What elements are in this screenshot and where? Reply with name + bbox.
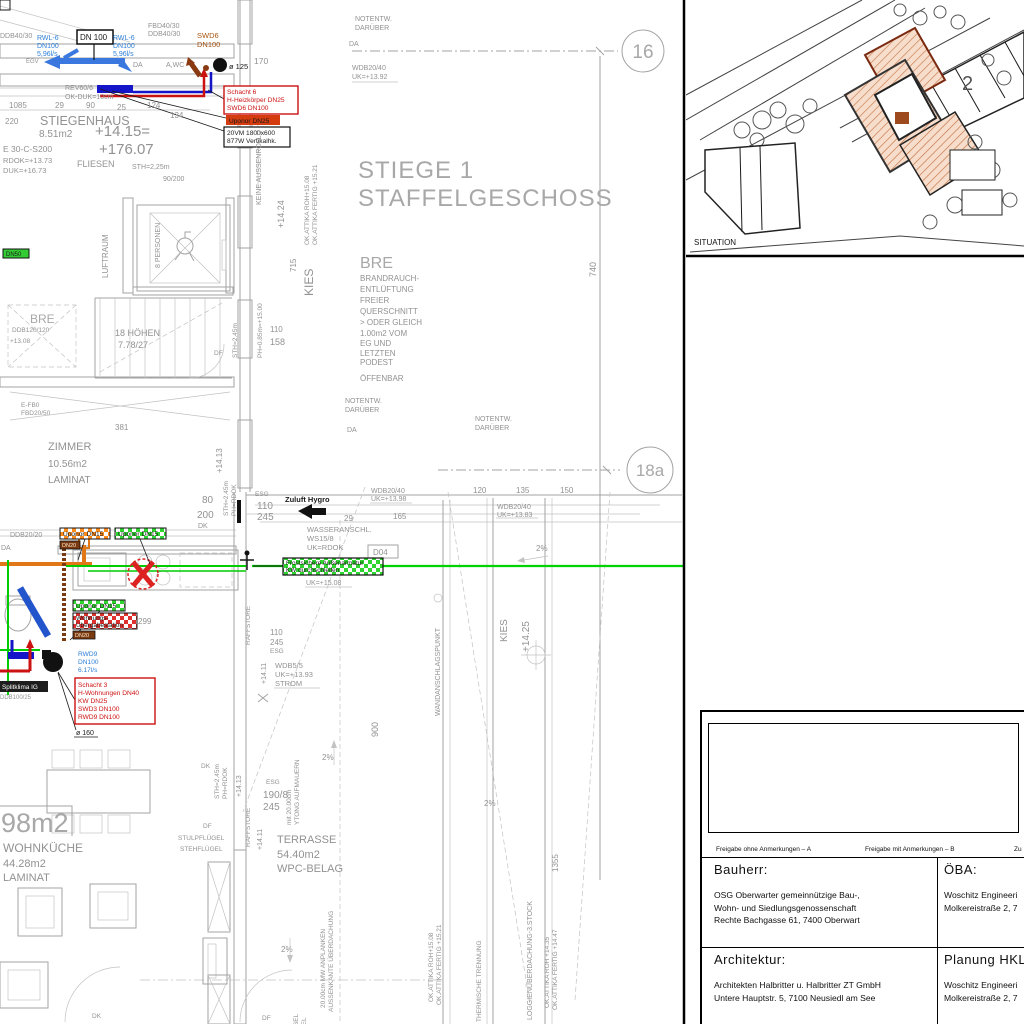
- svg-text:DN100: DN100: [113, 43, 135, 50]
- svg-text:BRE: BRE: [30, 312, 55, 326]
- svg-text:EG UND: EG UND: [360, 339, 391, 348]
- svg-text:ESG: ESG: [255, 491, 269, 498]
- svg-text:DDB120/120: DDB120/120: [12, 327, 50, 334]
- elevator: [137, 205, 230, 291]
- svg-text:ESG: ESG: [266, 779, 280, 786]
- svg-text:2%: 2%: [536, 544, 548, 553]
- svg-text:6.17l/s: 6.17l/s: [78, 667, 98, 674]
- svg-text:1085: 1085: [9, 101, 27, 110]
- svg-text:DK: DK: [201, 763, 211, 770]
- svg-text:UK=+15.08: UK=+15.08: [306, 580, 342, 587]
- svg-text:NOTENTW.: NOTENTW.: [475, 416, 512, 423]
- situation-plan: 2 SITUATION: [686, 0, 1024, 252]
- svg-text:2%: 2%: [281, 945, 293, 954]
- vm20-line1: 20VM 1800x600: [227, 130, 275, 137]
- svg-text:110: 110: [257, 501, 273, 512]
- rwl6-label-2: RWL-6: [113, 35, 135, 42]
- room-terrasse: TERRASSE: [277, 834, 336, 846]
- grid-label-16: 16: [632, 42, 653, 63]
- svg-text:LETZTEN: LETZTEN: [360, 349, 396, 358]
- zimmer-area: ZIMMER 10.56m2 LAMINAT 381 E-FB0 FBD20/5…: [10, 392, 230, 486]
- svg-text:158: 158: [270, 337, 285, 347]
- svg-text:OK.ATTIKA FERTIG +15.21: OK.ATTIKA FERTIG +15.21: [312, 164, 319, 245]
- svg-text:DA: DA: [349, 41, 359, 48]
- svg-text:LAMINAT: LAMINAT: [48, 475, 91, 486]
- svg-text:DUK=+16.73: DUK=+16.73: [3, 166, 46, 175]
- svg-text:80: 80: [202, 495, 214, 506]
- bauherr-cell: Bauherr: OSG Oberwarter gemeinnützige Ba…: [714, 862, 929, 927]
- svg-text:H-Wohnungen DN40: H-Wohnungen DN40: [78, 690, 139, 697]
- svg-text:STH=2.45m: STH=2.45m: [214, 764, 221, 799]
- svg-text:124: 124: [147, 101, 161, 110]
- svg-text:SWD3 DN100: SWD3 DN100: [78, 706, 120, 713]
- situation-left-building: [705, 143, 1002, 234]
- svg-text:OK.ATTIKA FERTIG +15.21: OK.ATTIKA FERTIG +15.21: [436, 924, 443, 1005]
- svg-text:Uponor DN15: Uponor DN15: [76, 603, 117, 610]
- svg-text:RWD9 DN100: RWD9 DN100: [78, 714, 120, 721]
- rev60-label: REV60/6: [65, 85, 93, 92]
- svg-text:UK=+13.92: UK=+13.92: [352, 74, 388, 81]
- architektur-cell: Architektur: Architekten Halbritter u. H…: [714, 952, 929, 1004]
- da-label-1: DA: [133, 62, 143, 69]
- svg-text:RAFFSTORE: RAFFSTORE: [245, 807, 252, 847]
- svg-text:BRANDRAUCH-: BRANDRAUCH-: [360, 274, 419, 283]
- svg-text:877W Vertikalhk.: 877W Vertikalhk.: [227, 138, 277, 145]
- svg-text:E-FB0: E-FB0: [21, 402, 40, 409]
- faucet-icon: [240, 551, 254, 571]
- svg-text:OK.ATTIKA ROH+15.08: OK.ATTIKA ROH+15.08: [428, 932, 435, 1002]
- svg-text:DN100: DN100: [78, 659, 99, 666]
- architektur-heading: Architektur:: [714, 952, 929, 967]
- svg-text:25: 25: [117, 103, 126, 112]
- svg-text:165: 165: [393, 512, 407, 521]
- svg-text:+14.15=: +14.15=: [95, 123, 150, 140]
- svg-text:90/200: 90/200: [163, 176, 185, 183]
- svg-text:DK: DK: [92, 1013, 102, 1020]
- svg-text:DA: DA: [347, 427, 357, 434]
- svg-text:Wohnungs-: Wohnungs-: [76, 615, 109, 622]
- svg-text:Uponor DN15: Uponor DN15: [118, 531, 159, 538]
- svg-text:ESG: ESG: [270, 648, 284, 655]
- svg-text:7.78/27: 7.78/27: [118, 340, 148, 350]
- hkls-cell: Planung HKLS: Woschitz Engineeri Molkere…: [944, 952, 1024, 1004]
- swd6-label: SWD6: [197, 31, 219, 40]
- svg-text:STULPFLÜGEL: STULPFLÜGEL: [178, 834, 225, 842]
- awc-label: A,WC: [166, 62, 184, 69]
- svg-text:200: 200: [197, 510, 214, 521]
- approval-b: Freigabe mit Anmerkungen – B: [865, 846, 955, 853]
- room-zimmer: ZIMMER: [48, 441, 91, 453]
- svg-text:D04: D04: [373, 548, 388, 557]
- schacht6-line1: Schacht 6: [227, 89, 257, 96]
- svg-text:+14.11: +14.11: [261, 663, 268, 684]
- svg-text:STH=2,25m: STH=2,25m: [132, 164, 170, 171]
- svg-text:900: 900: [370, 722, 380, 737]
- room-98m2: 98m2: [1, 808, 69, 838]
- situation-building-2: 2: [962, 73, 973, 95]
- svg-text:299: 299: [138, 617, 152, 626]
- svg-text:FREIER: FREIER: [360, 296, 390, 305]
- room-wohnkueche: WOHNKÜCHE: [3, 841, 83, 855]
- dim-740: 740: [588, 262, 598, 277]
- svg-text:PODEST: PODEST: [360, 358, 393, 367]
- svg-text:H-Heizkörper DN25: H-Heizkörper DN25: [227, 97, 285, 104]
- bauherr-heading: Bauherr:: [714, 862, 929, 877]
- section-marker: [237, 500, 241, 523]
- svg-text:RWD9: RWD9: [78, 651, 98, 658]
- svg-text:YTONG AUFMAUERN: YTONG AUFMAUERN: [294, 759, 301, 825]
- svg-text:245: 245: [270, 638, 284, 647]
- svg-text:STROM: STROM: [275, 679, 302, 688]
- svg-text:+14.25: +14.25: [521, 621, 532, 652]
- svg-text:DARÜBER: DARÜBER: [475, 424, 509, 432]
- svg-text:135: 135: [516, 486, 530, 495]
- svg-text:5,96l/s: 5,96l/s: [37, 51, 58, 58]
- svg-text:NOTENTW.: NOTENTW.: [355, 16, 392, 23]
- svg-text:8 PERSONEN: 8 PERSONEN: [155, 223, 162, 268]
- svg-text:DN100: DN100: [37, 43, 59, 50]
- svg-text:+176.07: +176.07: [99, 141, 154, 158]
- svg-text:715: 715: [289, 258, 298, 272]
- svg-text:DDB20/20: DDB20/20: [10, 532, 42, 539]
- svg-text:OK.ATTIKA ROH +14.35: OK.ATTIKA ROH +14.35: [544, 936, 551, 1008]
- svg-text:STH=2.45m: STH=2.45m: [223, 481, 230, 516]
- svg-text:WDB20/40: WDB20/40: [497, 504, 531, 511]
- wheelchair-icon: [175, 232, 194, 261]
- side-labels: KEINE AUSSENROLLO +14.24 OK.ATTIKA ROH+1…: [197, 129, 319, 530]
- svg-text:Übergabestation: Übergabestation: [76, 621, 123, 629]
- svg-text:KW DN25: KW DN25: [78, 698, 108, 705]
- svg-text:SWD6 DN100: SWD6 DN100: [227, 105, 269, 112]
- svg-text:THERMISCHE TRENNUNG: THERMISCHE TRENNUNG: [476, 941, 483, 1023]
- dia125-label: ø 125: [229, 62, 248, 71]
- svg-text:+14.13: +14.13: [215, 448, 224, 473]
- svg-text:ø 160: ø 160: [76, 730, 94, 737]
- svg-text:120: 120: [473, 486, 487, 495]
- svg-text:KIES: KIES: [499, 619, 510, 642]
- svg-text:8.51m2: 8.51m2: [39, 129, 73, 140]
- svg-text:Splitklima IG: Splitklima IG: [2, 684, 38, 691]
- svg-text:NOTENTW.: NOTENTW.: [345, 398, 382, 405]
- svg-text:DN20: DN20: [62, 543, 76, 549]
- svg-text:20.00cm MW ANPLANKEN: 20.00cm MW ANPLANKEN: [320, 929, 327, 1008]
- approval-a: Freigabe ohne Anmerkungen – A: [716, 846, 811, 853]
- svg-text:2%: 2%: [484, 799, 496, 808]
- svg-text:DA: DA: [1, 545, 11, 552]
- svg-text:245: 245: [263, 802, 280, 813]
- grid-markers: 16 18a 740: [588, 30, 673, 493]
- svg-text:DDB100/25: DDB100/25: [0, 695, 32, 701]
- svg-text:245: 245: [257, 512, 274, 523]
- oeba-heading: ÖBA:: [944, 862, 1024, 877]
- zuluft-arrow-icon: [298, 504, 326, 519]
- svg-text:10.56m2: 10.56m2: [48, 459, 87, 470]
- svg-text:RAFFSTORE: RAFFSTORE: [245, 605, 252, 645]
- svg-text:> ODER GLEICH: > ODER GLEICH: [360, 318, 422, 327]
- shaft-symbol: [213, 58, 227, 72]
- svg-text:E 30-C-S200: E 30-C-S200: [3, 144, 52, 154]
- svg-text:Uponor DN15: Uponor DN15: [63, 531, 104, 538]
- svg-text:AUSSENKANTE ÜBERDACHUNG: AUSSENKANTE ÜBERDACHUNG: [327, 911, 335, 1012]
- svg-text:UK=+13.98: UK=+13.98: [371, 496, 407, 503]
- approval-c: Zu: [1014, 846, 1022, 853]
- svg-text:110: 110: [270, 325, 283, 334]
- oeba-cell: ÖBA: Woschitz Engineeri Molkereistraße 2…: [944, 862, 1024, 914]
- svg-text:DK: DK: [198, 523, 208, 530]
- rwl6-label: RWL-6: [37, 35, 59, 42]
- svg-text:STH=2.45m: STH=2.45m: [232, 323, 239, 358]
- wohnkueche-area: 98m2 WOHNKÜCHE 44.28m2 LAMINAT DK DF STU…: [0, 763, 308, 1024]
- fbd40-label: FBD40/30: [148, 23, 180, 30]
- svg-text:KIES: KIES: [302, 269, 316, 296]
- svg-text:18 HÖHEN: 18 HÖHEN: [115, 328, 160, 338]
- dn50-label: DN50: [6, 252, 22, 258]
- svg-text:+14.24: +14.24: [276, 200, 286, 228]
- svg-text:DN20: DN20: [75, 633, 89, 639]
- svg-text:FLIESEN: FLIESEN: [77, 159, 115, 169]
- svg-text:STEHFLÜGEL: STEHFLÜGEL: [180, 845, 223, 853]
- page-title-line2: STAFFELGESCHOSS: [358, 185, 613, 212]
- svg-text:+14.13: +14.13: [236, 775, 243, 797]
- svg-text:QUERSCHNITT: QUERSCHNITT: [360, 307, 418, 316]
- svg-text:220: 220: [5, 117, 19, 126]
- plan-titles: STIEGE 1 STAFFELGESCHOSS NOTENTW. DARÜBE…: [345, 16, 613, 434]
- svg-text:WDB20/40: WDB20/40: [371, 488, 405, 495]
- svg-text:110: 110: [270, 628, 283, 637]
- svg-text:PH=RDOK: PH=RDOK: [231, 484, 238, 516]
- svg-text:OK.ATTIKA ROH+15.08: OK.ATTIKA ROH+15.08: [304, 175, 311, 245]
- svg-text:DN100: DN100: [197, 40, 220, 49]
- bre-note-title: BRE: [360, 255, 393, 272]
- page-title-line1: STIEGE 1: [358, 157, 474, 184]
- svg-text:+14.11: +14.11: [257, 829, 264, 850]
- svg-text:WPC-BELAG: WPC-BELAG: [277, 863, 343, 875]
- approval-strip: Freigabe ohne Anmerkungen – A Freigabe m…: [702, 843, 1024, 857]
- okduk-label: OK-DUK=10cm: [65, 94, 114, 101]
- svg-text:mit 20.00cm: mit 20.00cm: [286, 790, 293, 825]
- svg-text:90: 90: [86, 101, 95, 110]
- svg-text:WS15/8: WS15/8: [307, 534, 334, 543]
- uponor25-label: Uponor DN25: [229, 118, 270, 125]
- title-block-empty-field: [708, 723, 1019, 833]
- zuluft-label: Zuluft Hygro: [285, 495, 330, 504]
- furniture: [0, 750, 292, 1024]
- svg-text:150: 150: [560, 486, 574, 495]
- ddb40-left: DDB40/30: [0, 33, 32, 40]
- grid-label-18a: 18a: [636, 461, 665, 480]
- svg-text:DF: DF: [262, 1015, 271, 1022]
- floorplan: 16 18a 740 DDB40/30 RWL-6 DN100: [0, 0, 684, 1024]
- dim-170: 170: [254, 56, 268, 66]
- svg-text:DF: DF: [214, 350, 223, 357]
- svg-text:WDB5/5: WDB5/5: [275, 661, 303, 670]
- svg-text:1.00m2 VOM: 1.00m2 VOM: [360, 329, 407, 338]
- svg-text:UK=+13.93: UK=+13.93: [275, 670, 313, 679]
- svg-text:LOGGIENÜBERDACHUNG-3.STOCK: LOGGIENÜBERDACHUNG-3.STOCK: [526, 901, 534, 1020]
- svg-text:1355: 1355: [551, 854, 560, 872]
- hkls-heading: Planung HKLS:: [944, 952, 1024, 967]
- svg-text:2%: 2%: [322, 753, 334, 762]
- svg-text:UK=+13.83: UK=+13.83: [497, 512, 533, 519]
- svg-text:KW durchschleifen: KW durchschleifen: [286, 567, 340, 574]
- svg-text:Frostsichere Außenarmatur: Frostsichere Außenarmatur: [286, 560, 364, 567]
- svg-text:PH=RDOK: PH=RDOK: [222, 767, 229, 799]
- title-block: Freigabe ohne Anmerkungen – A Freigabe m…: [700, 710, 1024, 1024]
- svg-text:WANDANSCHLAGSPUNKT: WANDANSCHLAGSPUNKT: [435, 627, 442, 716]
- svg-text:STEHFLÜGEL: STEHFLÜGEL: [300, 1017, 308, 1024]
- svg-text:54.40m2: 54.40m2: [277, 849, 320, 861]
- svg-text:ÖFFENBAR: ÖFFENBAR: [360, 374, 404, 383]
- staircase: [8, 298, 232, 378]
- svg-text:OK.ATTIKA FERTIG +14.47: OK.ATTIKA FERTIG +14.47: [552, 929, 559, 1010]
- svg-text:134: 134: [170, 111, 184, 120]
- svg-text:29: 29: [55, 101, 64, 110]
- svg-text:44.28m2: 44.28m2: [3, 858, 46, 870]
- svg-text:PH=0.85m=+15.00: PH=0.85m=+15.00: [257, 303, 264, 358]
- svg-text:UK=RDOK: UK=RDOK: [307, 543, 343, 552]
- svg-text:Schacht 3: Schacht 3: [78, 682, 108, 689]
- svg-text:+13.08: +13.08: [10, 338, 30, 345]
- dimensions: [0, 47, 620, 688]
- svg-text:5,96l/s: 5,96l/s: [113, 51, 134, 58]
- room-luftraum: LUFTRAUM: [101, 234, 110, 278]
- svg-text:DF: DF: [203, 823, 212, 830]
- svg-text:DARÜBER: DARÜBER: [345, 406, 379, 414]
- svg-text:RDOK=+13.73: RDOK=+13.73: [3, 156, 52, 165]
- svg-text:KEINE AUSSENROLLO: KEINE AUSSENROLLO: [256, 129, 263, 205]
- svg-text:381: 381: [115, 423, 129, 432]
- cad-plan-page: 16 18a 740 DDB40/30 RWL-6 DN100: [0, 0, 1024, 1024]
- svg-text:WASSERANSCHL.: WASSERANSCHL.: [307, 525, 372, 534]
- egv-label: EGV: [26, 59, 39, 65]
- svg-text:190/8: 190/8: [263, 790, 288, 801]
- dn100-label: DN 100: [80, 33, 108, 42]
- svg-text:LAMINAT: LAMINAT: [3, 872, 50, 884]
- svg-text:STULPFLÜGEL: STULPFLÜGEL: [292, 1013, 300, 1024]
- svg-text:DARÜBER: DARÜBER: [355, 24, 389, 32]
- ddb40-label: DDB40/30: [148, 31, 180, 38]
- situation-label: SITUATION: [694, 238, 736, 247]
- svg-text:WDB20/40: WDB20/40: [352, 65, 386, 72]
- svg-text:ENTLÜFTUNG: ENTLÜFTUNG: [360, 285, 414, 294]
- svg-text:FBD20/50: FBD20/50: [21, 410, 51, 417]
- svg-text:29: 29: [344, 514, 353, 523]
